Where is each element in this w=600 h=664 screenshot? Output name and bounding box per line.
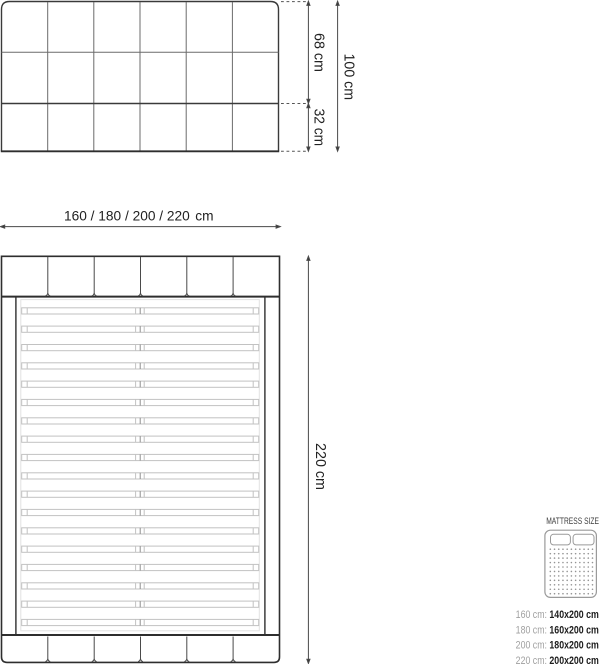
svg-text:220 cm: 220 cm (312, 443, 328, 490)
svg-text:MATTRESS SIZE: MATTRESS SIZE (546, 516, 599, 526)
svg-text:68 cm: 68 cm (311, 33, 327, 72)
svg-text:32 cm: 32 cm (311, 109, 327, 146)
svg-text:180 cm: 160x200 cm: 180 cm: 160x200 cm (516, 624, 599, 636)
svg-text:200 cm: 180x200 cm: 200 cm: 180x200 cm (516, 640, 599, 652)
svg-text:160 / 180 / 200 / 220 cm: 160 / 180 / 200 / 220 cm (64, 207, 214, 223)
svg-text:100 cm: 100 cm (341, 54, 357, 101)
svg-text:220 cm: 200x200 cm: 220 cm: 200x200 cm (516, 655, 599, 664)
svg-text:160 cm: 140x200 cm: 160 cm: 140x200 cm (516, 609, 599, 621)
